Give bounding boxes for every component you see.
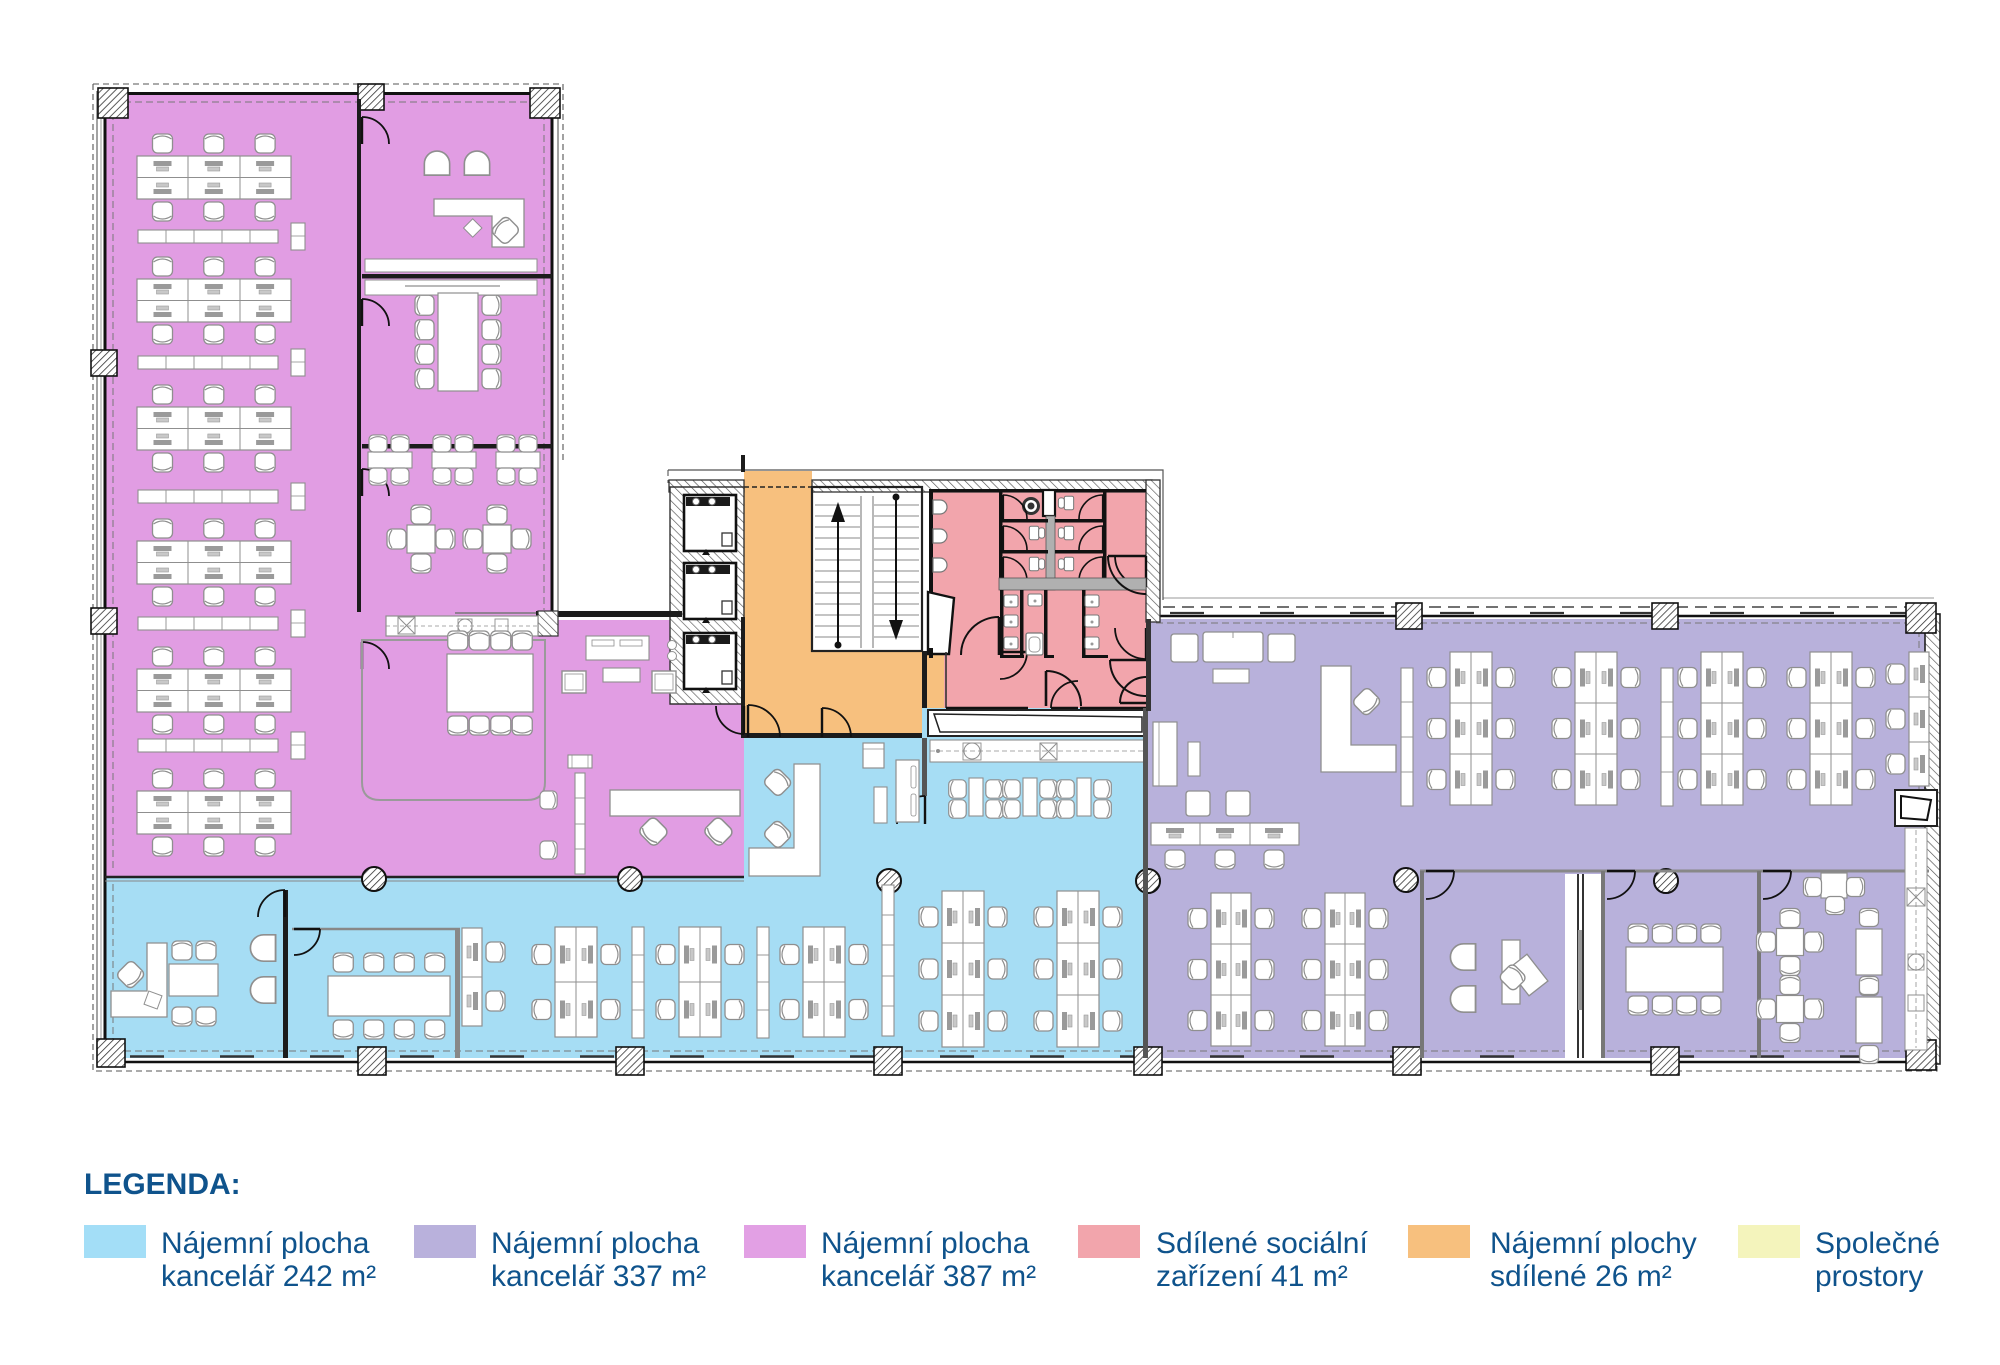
svg-text:Nájemní plocha: Nájemní plocha — [491, 1227, 700, 1260]
svg-text:Nájemní plocha: Nájemní plocha — [821, 1227, 1030, 1260]
svg-text:sdílené 26 m²: sdílené 26 m² — [1490, 1260, 1672, 1293]
svg-text:Sdílené sociální: Sdílené sociální — [1156, 1227, 1368, 1260]
svg-text:prostory: prostory — [1815, 1260, 1923, 1293]
svg-text:Nájemní plocha: Nájemní plocha — [161, 1227, 370, 1260]
svg-text:kancelář 242 m²: kancelář 242 m² — [161, 1260, 376, 1293]
svg-text:zařízení 41 m²: zařízení 41 m² — [1156, 1260, 1348, 1293]
svg-text:kancelář 337 m²: kancelář 337 m² — [491, 1260, 706, 1293]
svg-text:Nájemní plochy: Nájemní plochy — [1490, 1227, 1697, 1260]
svg-text:LEGENDA:: LEGENDA: — [84, 1168, 241, 1201]
svg-text:Společné: Společné — [1815, 1227, 1940, 1260]
svg-text:kancelář 387 m²: kancelář 387 m² — [821, 1260, 1036, 1293]
